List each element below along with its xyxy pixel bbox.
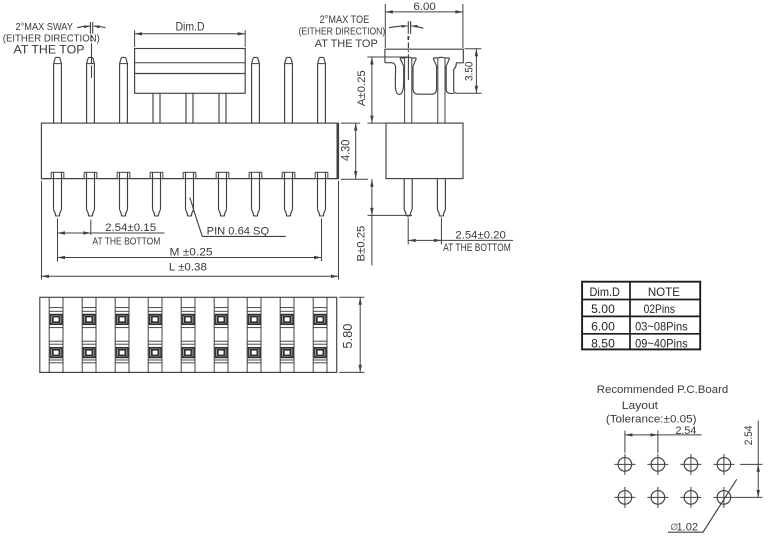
svg-text:03~08Pins: 03~08Pins bbox=[635, 320, 688, 334]
svg-text:B±0.25: B±0.25 bbox=[356, 226, 368, 262]
svg-text:Layout: Layout bbox=[622, 400, 659, 412]
svg-text:AT THE BOTTOM: AT THE BOTTOM bbox=[443, 242, 511, 254]
svg-text:Recommended P.C.Board: Recommended P.C.Board bbox=[597, 384, 728, 396]
svg-text:3.50: 3.50 bbox=[464, 62, 476, 82]
svg-text:AT THE BOTTOM: AT THE BOTTOM bbox=[92, 236, 160, 247]
svg-text:L ±0.38: L ±0.38 bbox=[169, 262, 207, 274]
svg-text:(EITHER DIRECTION): (EITHER DIRECTION) bbox=[299, 26, 386, 37]
svg-text:2.54±0.20: 2.54±0.20 bbox=[455, 229, 505, 241]
svg-text:5.80: 5.80 bbox=[340, 324, 355, 349]
svg-text:5.00: 5.00 bbox=[591, 302, 615, 316]
svg-text:09~40Pins: 09~40Pins bbox=[635, 337, 688, 351]
svg-text:1.02: 1.02 bbox=[677, 521, 699, 533]
svg-text:Dim.D: Dim.D bbox=[590, 285, 621, 299]
svg-text:2.54: 2.54 bbox=[743, 426, 755, 446]
svg-text:4.30: 4.30 bbox=[338, 139, 352, 161]
svg-text:NOTE: NOTE bbox=[648, 285, 680, 299]
svg-text:2.54: 2.54 bbox=[676, 425, 697, 437]
svg-text:8.50: 8.50 bbox=[591, 337, 615, 351]
svg-text:A±0.25: A±0.25 bbox=[356, 70, 368, 106]
svg-text:AT THE TOP: AT THE TOP bbox=[14, 44, 85, 57]
svg-text:(Tolerance:±0.05): (Tolerance:±0.05) bbox=[606, 414, 697, 426]
svg-text:02Pins: 02Pins bbox=[644, 302, 675, 316]
svg-text:2.54±0.15: 2.54±0.15 bbox=[105, 222, 156, 234]
svg-text:AT THE TOP: AT THE TOP bbox=[315, 38, 378, 50]
svg-text:M ±0.25: M ±0.25 bbox=[170, 246, 213, 258]
svg-text:PIN 0.64 SQ: PIN 0.64 SQ bbox=[207, 226, 270, 238]
svg-text:6.00: 6.00 bbox=[413, 1, 435, 13]
svg-text:2°MAX SWAY: 2°MAX SWAY bbox=[16, 22, 73, 33]
svg-text:Dim.D: Dim.D bbox=[176, 19, 205, 33]
svg-text:6.00: 6.00 bbox=[591, 320, 615, 334]
svg-text:2°MAX TOE: 2°MAX TOE bbox=[320, 14, 370, 26]
